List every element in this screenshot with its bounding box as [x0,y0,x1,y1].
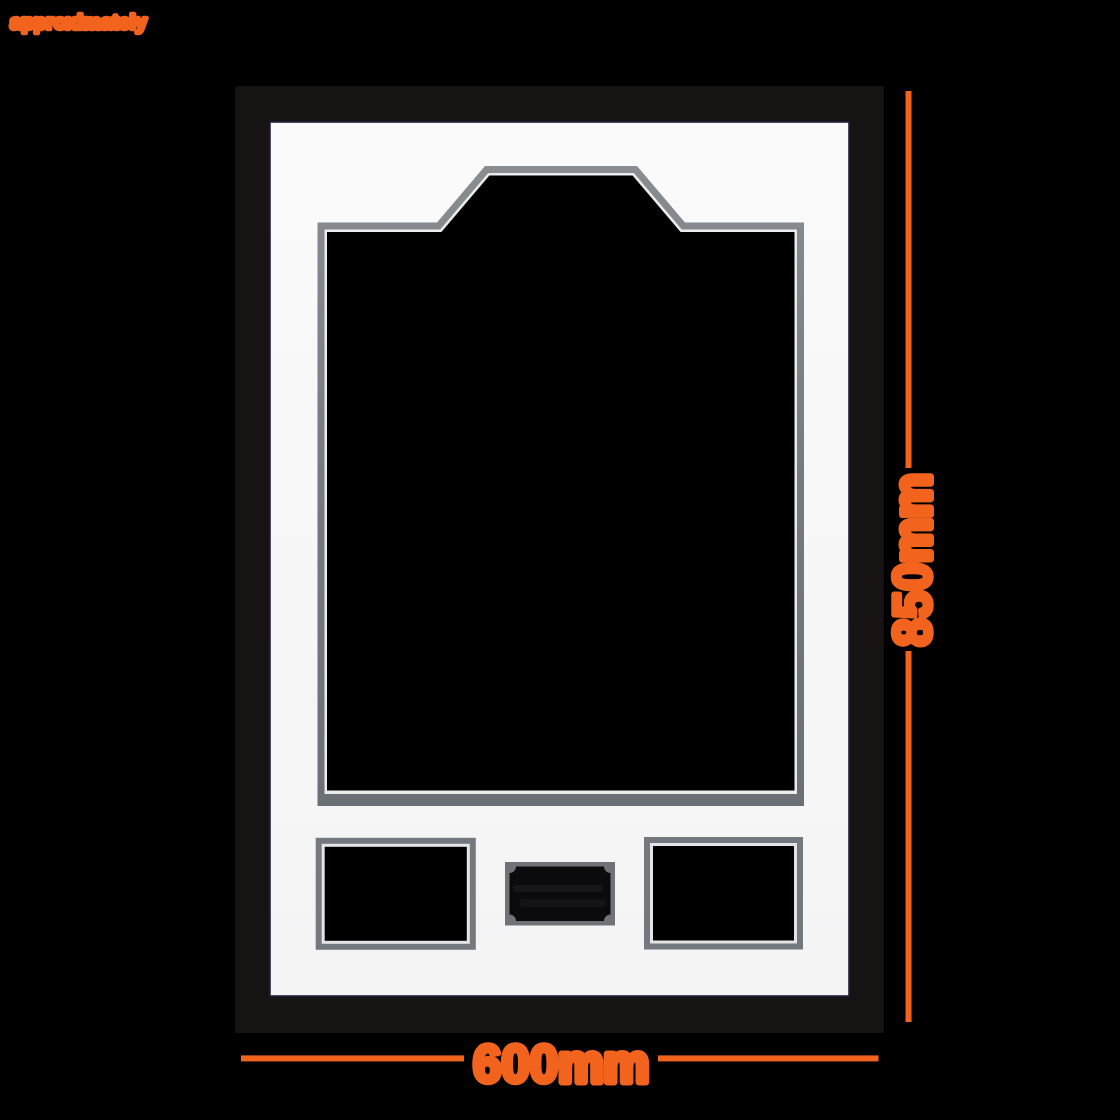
svg-text:approximately: approximately [10,12,147,34]
svg-text:600mm: 600mm [473,1035,649,1094]
svg-text:850mm: 850mm [884,474,943,647]
